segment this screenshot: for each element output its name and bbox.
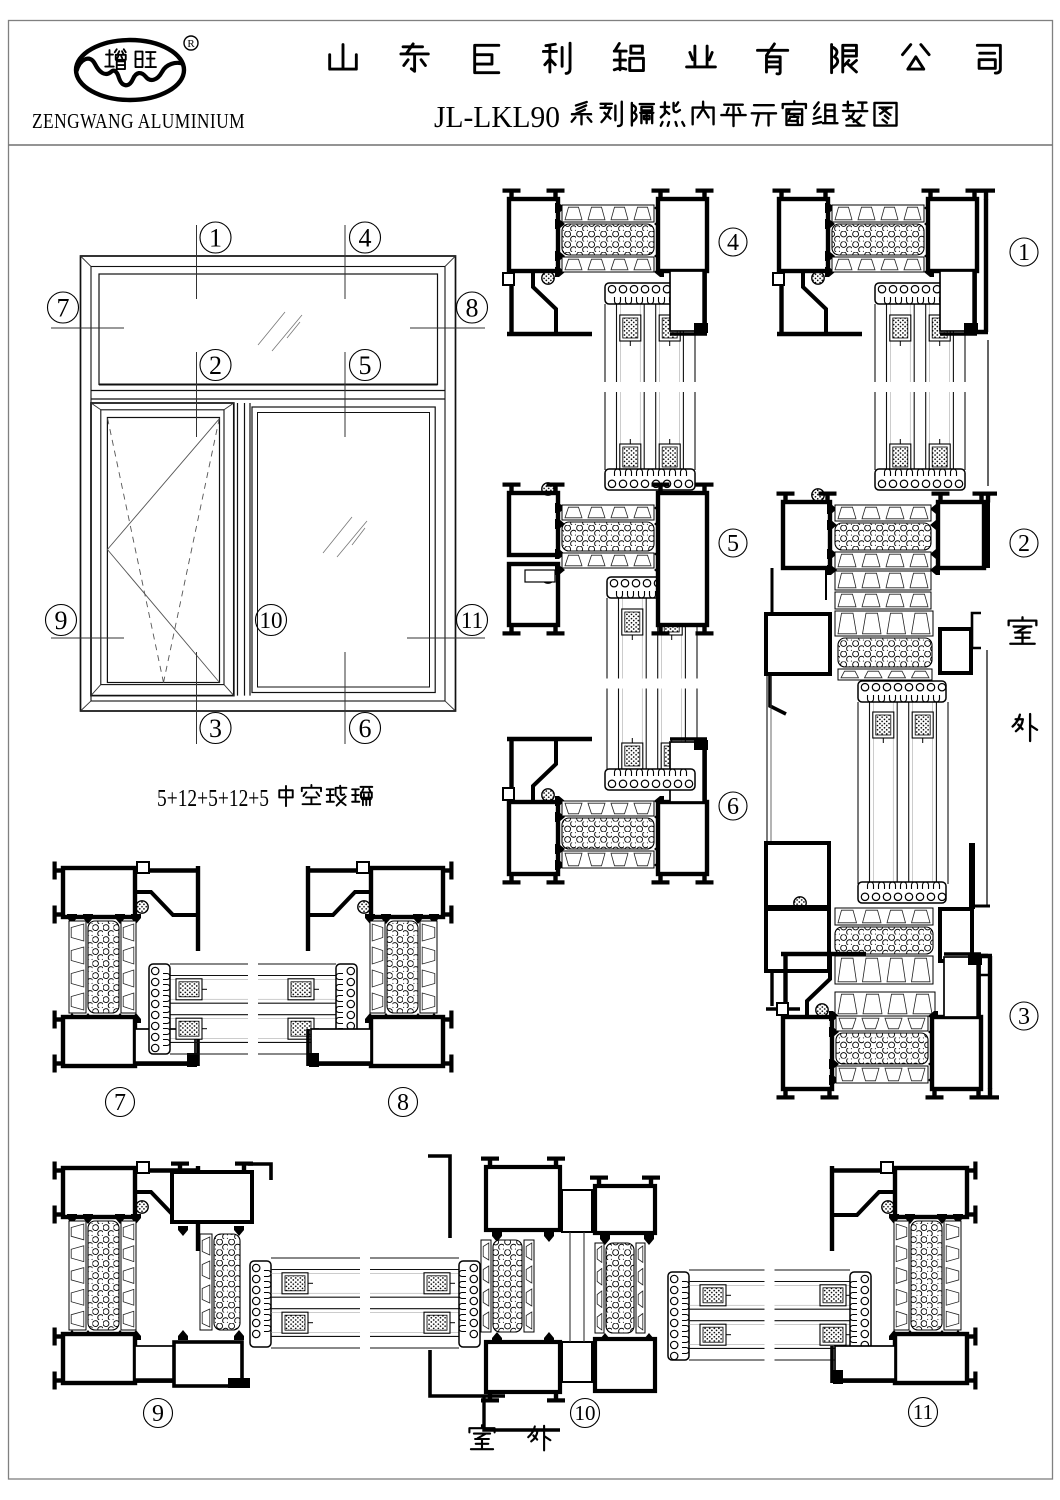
svg-text:3: 3 <box>1018 1004 1030 1030</box>
svg-text:3: 3 <box>209 714 222 743</box>
svg-text:5: 5 <box>359 351 372 380</box>
svg-text:4: 4 <box>727 230 739 256</box>
svg-text:10: 10 <box>260 608 283 633</box>
svg-text:11: 11 <box>461 608 483 633</box>
svg-text:6: 6 <box>727 794 739 820</box>
svg-text:10: 10 <box>575 1401 596 1425</box>
svg-text:2: 2 <box>1018 531 1030 557</box>
svg-text:5+12+5+12+5: 5+12+5+12+5 <box>157 786 269 812</box>
svg-text:8: 8 <box>397 1090 409 1116</box>
svg-text:2: 2 <box>209 351 222 380</box>
svg-text:7: 7 <box>57 293 70 322</box>
svg-text:8: 8 <box>466 293 479 322</box>
svg-text:6: 6 <box>359 714 372 743</box>
svg-text:7: 7 <box>114 1090 126 1116</box>
svg-text:R: R <box>187 38 195 50</box>
svg-text:1: 1 <box>209 223 222 252</box>
svg-text:11: 11 <box>913 1400 933 1424</box>
svg-text:4: 4 <box>359 223 372 252</box>
svg-text:9: 9 <box>55 606 68 635</box>
svg-text:ZENGWANG ALUMINIUM: ZENGWANG ALUMINIUM <box>32 109 245 133</box>
svg-text:1: 1 <box>1018 240 1030 266</box>
svg-text:5: 5 <box>727 531 739 557</box>
svg-text:9: 9 <box>152 1401 164 1427</box>
svg-text:JL-LKL90: JL-LKL90 <box>434 99 560 134</box>
